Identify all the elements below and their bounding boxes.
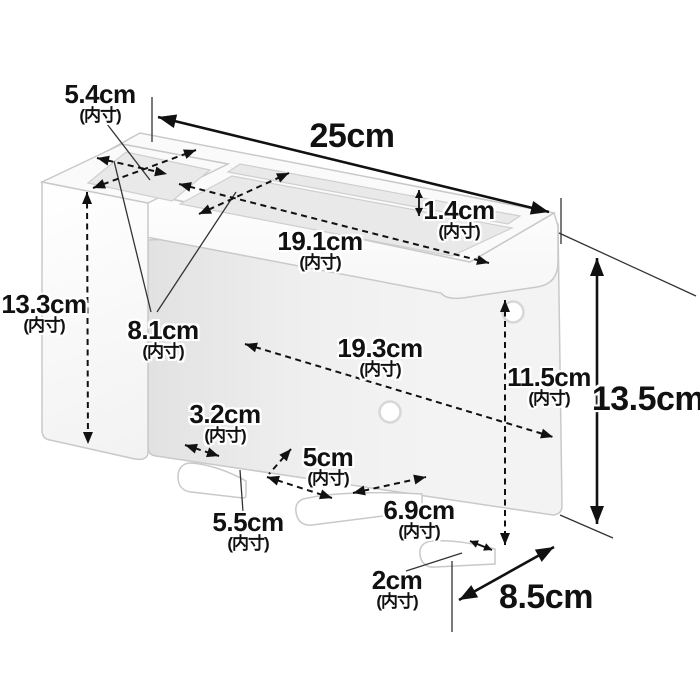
dim-lower-inner-width-label: 19.3cm (内寸) [337,336,422,379]
dim-tray-inner-depth-label: 8.1cm (内寸) [127,318,198,361]
dim-hook-inner-length-label: 5.5cm (内寸) [212,510,283,553]
dim-overall-depth-label: 8.5cm [499,581,593,613]
dim-hook-tip-width-label: 2cm (内寸) [372,568,423,611]
dim-hook-gap-middle-label: 5cm (内寸) [303,445,354,488]
dim-hook-gap-left-label: 3.2cm (内寸) [189,402,260,445]
dim-left-box-height-label: 13.3cm (内寸) [1,292,86,335]
dimension-diagram: 5.4cm (内寸) 25cm 1.4cm (内寸) 19.1cm (内寸) 1… [0,0,700,700]
mount-hole-left [380,402,401,423]
dim-rear-slot-depth-label: 1.4cm (内寸) [423,198,494,241]
dim-overall-width-label: 25cm [310,120,395,152]
dim-left-box-width-label: 5.4cm (内寸) [64,82,135,125]
dim-lower-inner-height-label: 11.5cm (内寸) [507,365,591,408]
dim-overall-height-label: 13.5cm [592,383,700,415]
dim-hook-gap-right-label: 6.9cm (内寸) [383,498,454,541]
dim-tray-inner-width-label: 19.1cm (内寸) [277,229,362,272]
